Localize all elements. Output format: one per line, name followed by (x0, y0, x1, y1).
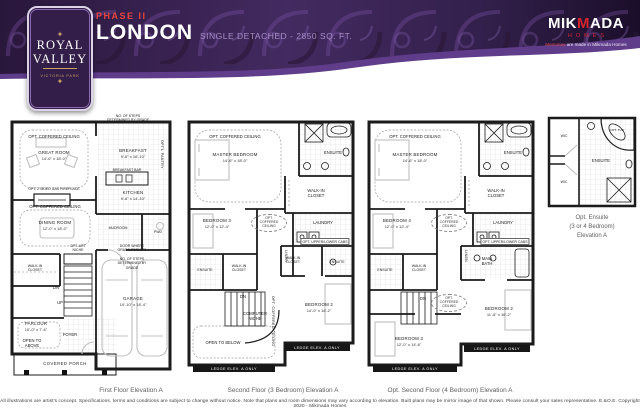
opt-ceiling-bedroom4: OPT. COFFERED CEILING (431, 214, 467, 232)
foyer-label: FOYER (63, 332, 77, 337)
mik-text: MIK (548, 15, 577, 32)
stairs-dn-label: DN (420, 296, 426, 301)
room-dims: 14'-6" x 18'-0" (392, 158, 437, 163)
opt-ceiling-hall: OPT. COFFERED CEILING (431, 294, 467, 312)
room-name: MASTER BEDROOM (392, 152, 437, 158)
ensuite-bedroom3: ENSUITE (197, 268, 212, 272)
room-name: GREAT ROOM (38, 150, 70, 156)
opt-ceiling-master: OPT. COFFERED CEILING (389, 134, 440, 139)
title-block: PHASE II LONDON SINGLE DETACHED - 2850 S… (96, 11, 352, 44)
laundry-label: LAUNDRY (313, 220, 333, 225)
red-m-icon: M (577, 15, 590, 32)
room-dims: 14'-6" x 18'-0" (212, 158, 257, 163)
plan-caption-first-floor: First Floor Elevation A (99, 387, 163, 394)
room-name: BEDROOM 2 (305, 302, 333, 308)
opt-ceiling-great-room: OPT. COFFERED CEILING (28, 134, 79, 139)
room-label-parlour: PARLOUR 10'-0" x 7'-6" (25, 321, 47, 332)
room-dims: 9'-6" x 16'-10" (119, 154, 147, 159)
opt-tub-label: OPT. TUB (610, 129, 623, 133)
fireplace-note: OPT. 2 SIDED GAS FIREPLACE (28, 187, 79, 191)
ensuite-bedroom3: ENSUITE (377, 268, 392, 272)
phase-label: PHASE II (96, 11, 352, 21)
cabs-note: OPT. UPPER/LOWER CABS (300, 238, 349, 245)
model-name: LONDON (96, 21, 193, 44)
room-name: BEDROOM 2 (485, 306, 513, 312)
steps-grade-note: NO. OF STEPS DETERMINED BY GRADE (114, 257, 150, 270)
ornament-bottom-icon: ✦ (57, 78, 64, 86)
walk-in-closet-bedroom3: WALK-IN CLOSET (407, 264, 431, 273)
open-to-below-label: OPEN TO BELOW (206, 340, 241, 345)
logo-line-valley: VALLEY (33, 53, 87, 66)
room-dims: 11'-8" x 16'-2" (485, 312, 513, 317)
room-label-kitchen: KITCHEN 9'-6" x 14'-10" (121, 190, 146, 201)
covered-porch-label: COVERED PORCH (43, 361, 87, 366)
second-floor-3bed-plan: OPT. COFFERED CEILING MASTER BEDROOM 14'… (185, 114, 357, 404)
plan-caption-opt-second-floor: Opt. Second Floor (4 Bedroom) Elevation … (387, 387, 512, 394)
laundry-label: LAUNDRY (493, 220, 513, 225)
room-dims: 14'-6" x 18'-0" (38, 156, 70, 161)
room-label-bedroom3: BEDROOM 3 12'-0" x 12'-4" (203, 218, 231, 229)
room-name: BEDROOM 3 (395, 336, 423, 342)
room-name: BEDROOM 4 (383, 218, 411, 224)
room-name: MASTER BEDROOM (212, 152, 257, 158)
opt-ensuite-detail: WIC WIC ENSUITE OPT. TUB Opt. Ensuite (3… (545, 114, 639, 254)
note-steps-top: NO. OF STEPS DETERMINED BY GRADE (105, 114, 151, 123)
gold-rule (43, 68, 77, 69)
room-label-bedroom2: BEDROOM 2 11'-8" x 16'-2" (485, 306, 513, 317)
ada-text: ADA (590, 15, 624, 32)
ensuite-label: ENSUITE (592, 158, 610, 163)
ensuite-bedroom2: ENSUITE (329, 260, 344, 264)
room-dims: 12'-0" x 14'-6" (395, 342, 423, 347)
wic-label-2: WIC (561, 180, 568, 184)
tagline-red: Memories (545, 42, 565, 47)
room-dims: 12'-0" x 12'-4" (203, 224, 231, 229)
room-dims: 9'-6" x 14'-10" (121, 196, 146, 201)
ledge-note-left: LEDGE ELEV. A ONLY (193, 365, 275, 372)
ensuite-caption-line2: (3 or 4 Bedroom) (569, 223, 614, 232)
room-label-master: MASTER BEDROOM 14'-6" x 18'-0" (392, 152, 437, 163)
room-name: BREAKFAST (119, 148, 147, 154)
room-dims: 14'-0" x 16'-2" (305, 308, 333, 313)
stairs-dn-label: DN (53, 285, 59, 290)
header-banner: ✦ ROYAL VALLEY VICTORIA PARK ✦ PHASE II … (0, 0, 640, 92)
first-floor-plan: NO. OF STEPS DETERMINED BY GRADE OPT. CO… (8, 114, 176, 404)
stairs-dn-label: DN (240, 294, 246, 299)
ensuite-caption-line1: Opt. Ensuite (569, 214, 614, 223)
homes-label: HOMES (538, 33, 634, 39)
room-dims: 19'-10" x 18'-4" (120, 302, 147, 307)
logo-line-royal: ROYAL (37, 39, 84, 52)
opt-ceiling-hall: OPT. COFFERED CEILING (271, 296, 275, 346)
room-dims: 12'-0" x 12'-4" (383, 224, 411, 229)
pwd-label: PWD (154, 230, 162, 234)
walk-in-closet-bedroom2: WALK-IN CLOSET (281, 256, 305, 265)
ledge-note-right: LEDGE ELEV. A ONLY (284, 344, 350, 351)
computer-niche-label: COMPUTER NICHE (240, 311, 270, 322)
disclaimer-text: All illustrations are artist's concept. … (0, 399, 640, 409)
opt-ceiling-dining: OPT. COFFERED CEILING (29, 204, 80, 209)
linen-label: LINEN (464, 250, 468, 262)
room-name: DINING ROOM (39, 220, 71, 226)
room-label-bedroom4: BEDROOM 4 12'-0" x 12'-4" (383, 218, 411, 229)
room-label-breakfast: BREAKFAST 9'-6" x 16'-10" (119, 148, 147, 159)
opt-ceiling-master: OPT. COFFERED CEILING (209, 134, 260, 139)
ensuite-label: ENSUITE (504, 150, 522, 155)
room-label-master: MASTER BEDROOM 14'-6" x 18'-0" (212, 152, 257, 163)
ledge-note-right: LEDGE ELEV. A ONLY (464, 345, 530, 352)
room-label-great-room: GREAT ROOM 14'-6" x 18'-0" (38, 150, 70, 161)
ensuite-caption-line3: Elevation A (569, 232, 614, 241)
room-name: GARAGE (120, 296, 147, 302)
open-to-above-label: OPEN TO ABOVE (20, 338, 44, 349)
door-grade-note: DOOR WHERE GRADE PERMITS (117, 244, 147, 253)
ensuite-label: ENSUITE (324, 150, 342, 155)
room-dims: 12'-0" x 18'-0" (39, 226, 71, 231)
room-name: PARLOUR (25, 321, 47, 327)
pantry-label: OPT'L PANTRY (160, 140, 164, 169)
walk-in-closet-bedroom3: WALK-IN CLOSET (227, 264, 251, 273)
cabs-note: OPT. UPPER/LOWER CABS (480, 238, 529, 245)
ledge-note-left: LEDGE ELEV. A ONLY (373, 365, 457, 372)
room-label-bedroom3: BEDROOM 3 12'-0" x 14'-6" (395, 336, 423, 347)
room-name: BEDROOM 3 (203, 218, 231, 224)
walk-in-closet-label: WALK-IN CLOSET (22, 264, 48, 273)
tagline-rest: are made in Mikmada Homes (565, 42, 626, 47)
stairs-up-label: UP (57, 300, 63, 305)
tagline: Memories are made in Mikmada Homes (538, 42, 634, 47)
room-label-bedroom2: BEDROOM 2 14'-0" x 16'-2" (305, 302, 333, 313)
walk-in-closet-master: WALK-IN CLOSET (482, 188, 510, 199)
ensuite-caption: Opt. Ensuite (3 or 4 Bedroom) Elevation … (569, 214, 614, 241)
art-niche-label: OPT. ART NICHE (65, 244, 91, 253)
model-subtitle: SINGLE DETACHED - 2850 SQ. FT. (200, 31, 352, 41)
room-label-garage: GARAGE 19'-10" x 18'-4" (120, 296, 147, 307)
brochure-page: ✦ ROYAL VALLEY VICTORIA PARK ✦ PHASE II … (0, 0, 640, 414)
wic-label-1: WIC (561, 134, 568, 138)
room-label-dining: DINING ROOM 12'-0" x 18'-0" (39, 220, 71, 231)
walk-in-closet-master: WALK-IN CLOSET (302, 188, 330, 199)
main-bath-label: MAIN BATH (476, 256, 498, 267)
room-dims: 10'-0" x 7'-6" (25, 327, 47, 332)
mikmada-logo: MIKMADA HOMES Memories are made in Mikma… (538, 16, 634, 47)
royal-valley-logo: ✦ ROYAL VALLEY VICTORIA PARK ✦ (27, 6, 93, 111)
second-floor-4bed-plan: OPT. COFFERED CEILING MASTER BEDROOM 14'… (365, 114, 537, 404)
mudroom-label: MUDROOM (109, 226, 128, 230)
plan-caption-second-floor: Second Floor (3 Bedroom) Elevation A (228, 387, 339, 394)
breakfast-bar-label: BREAKFAST BAR (113, 168, 142, 172)
opt-ceiling-bedroom3: OPT. COFFERED CEILING (251, 214, 287, 232)
mikmada-wordmark: MIKMADA (538, 16, 634, 31)
room-name: KITCHEN (121, 190, 146, 196)
